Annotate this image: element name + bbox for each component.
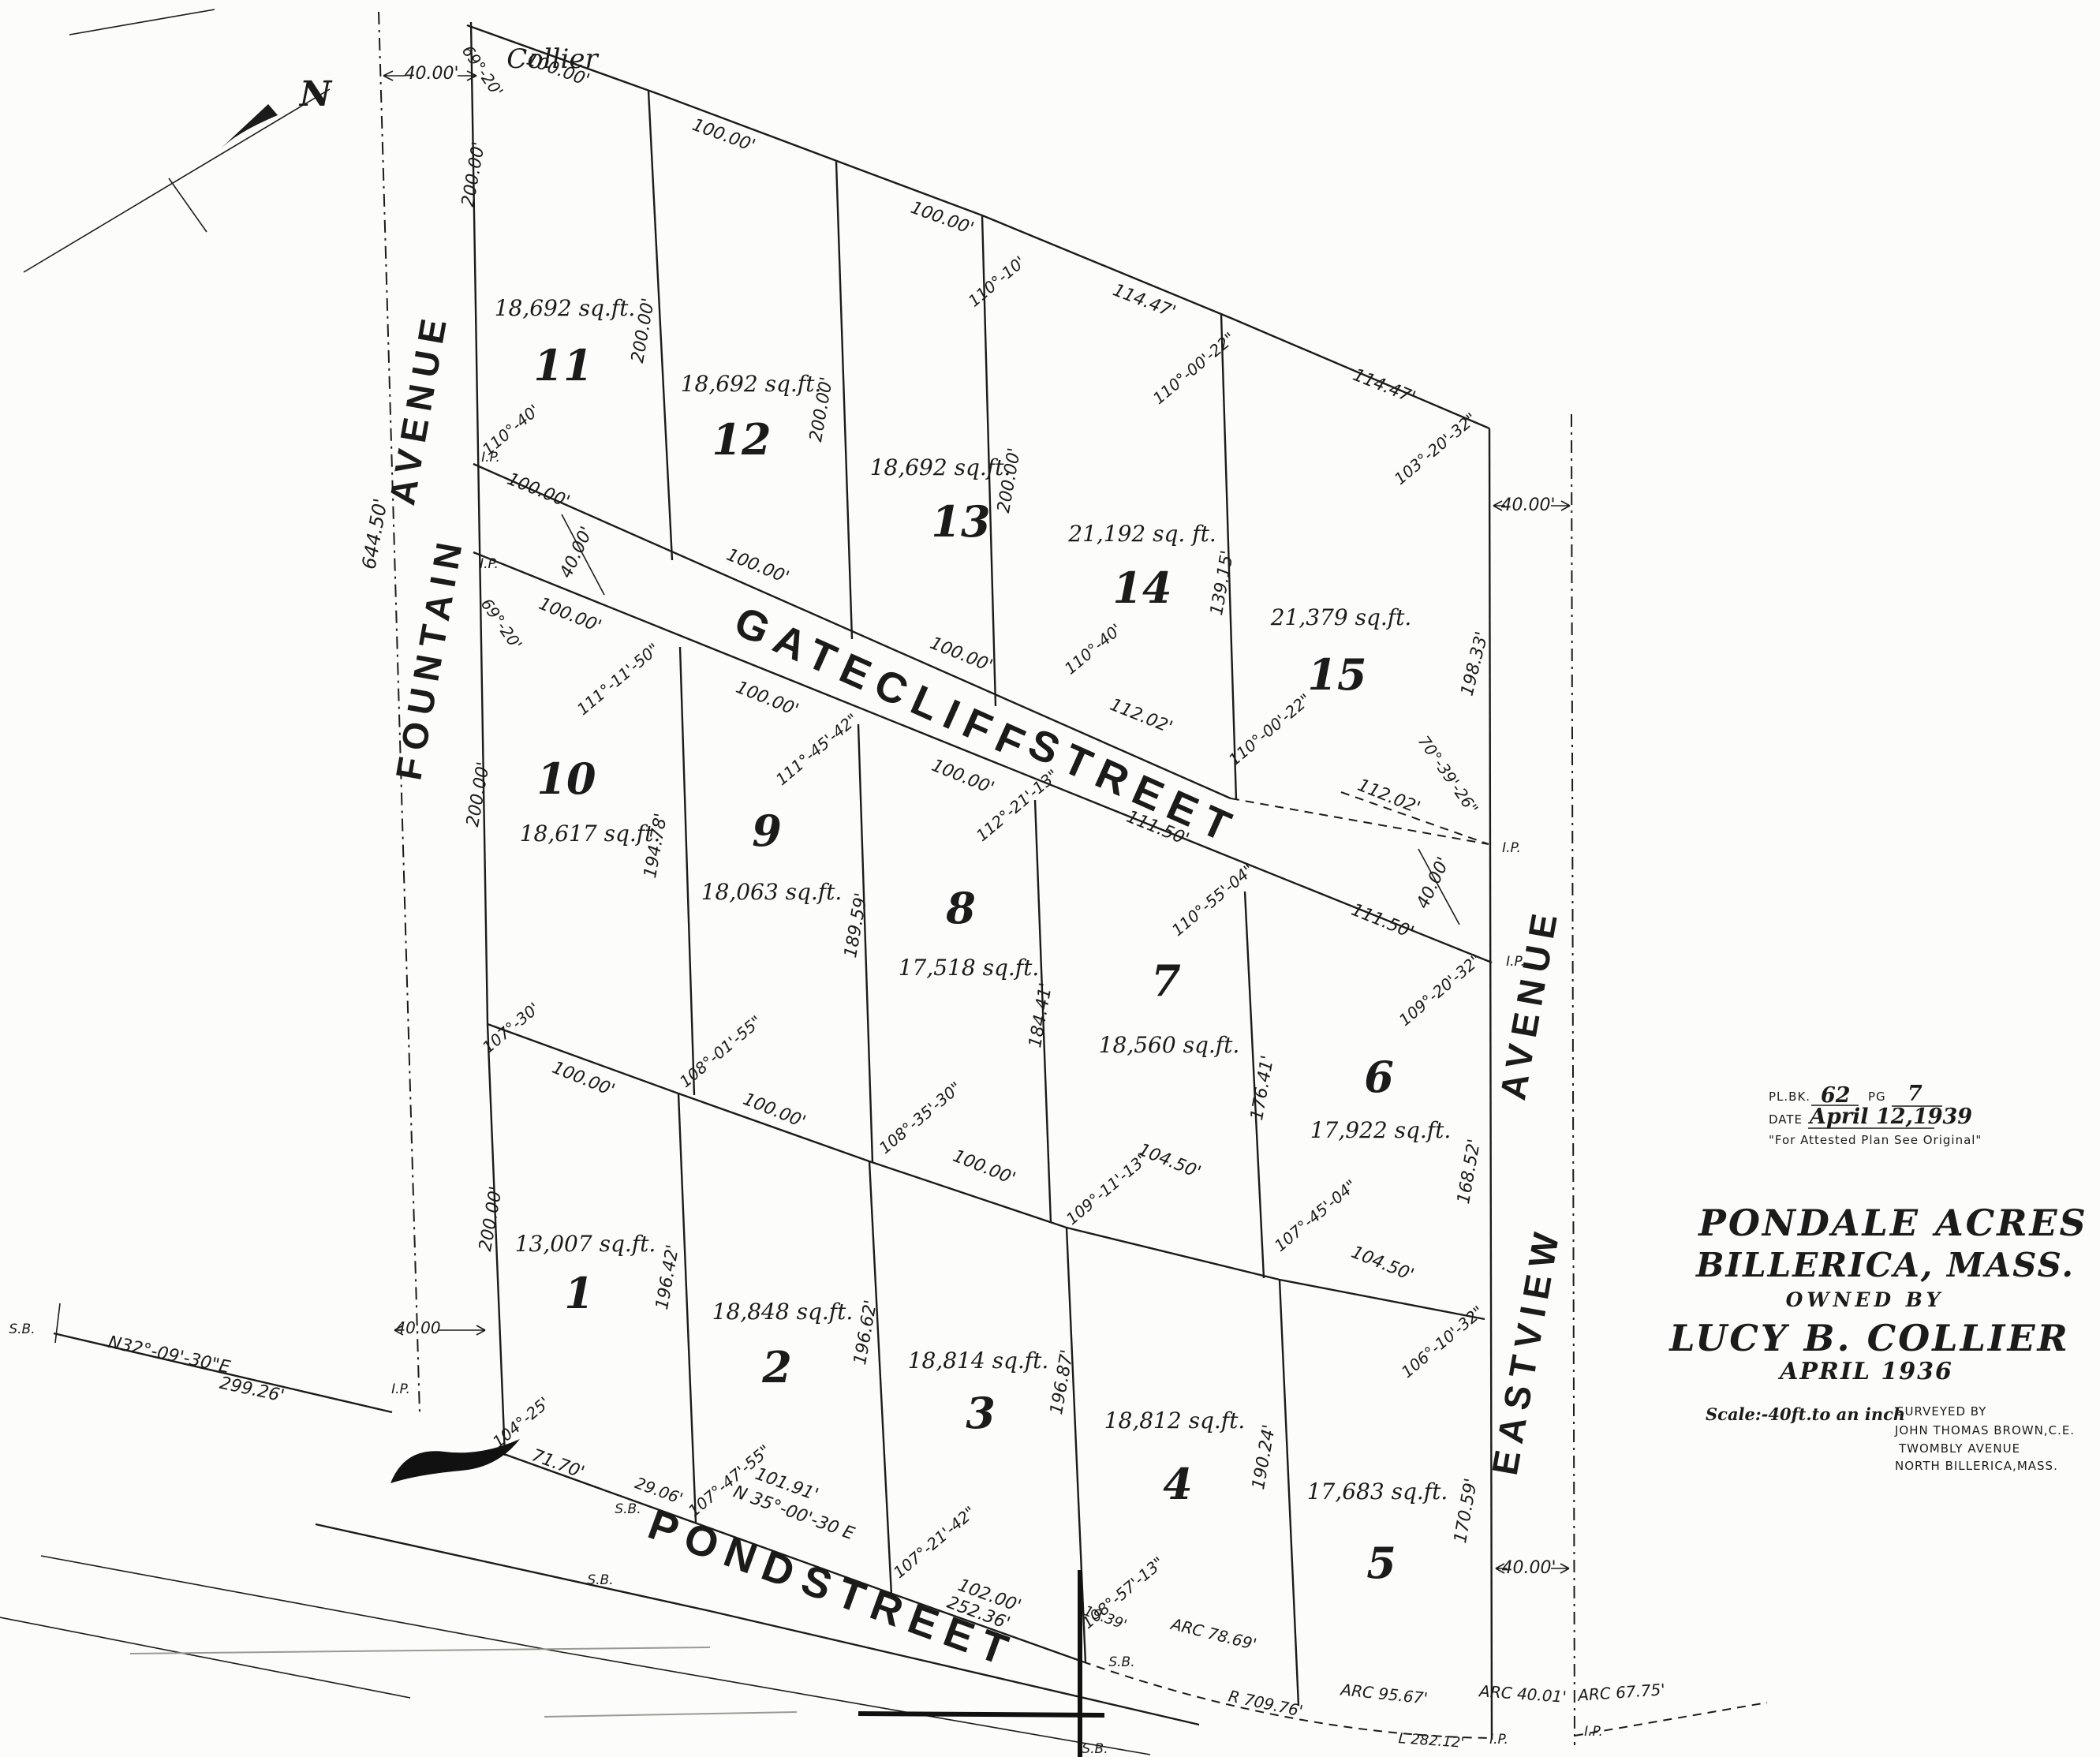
dim-arc-2: ARC 95.67'	[1338, 1680, 1429, 1708]
dim-arc-1: ARC 78.69'	[1168, 1614, 1258, 1654]
dim-row2-4: 104.50'	[1135, 1140, 1203, 1183]
dim-lot6-e: 168.52'	[1454, 1138, 1485, 1206]
plan-title: PONDALE ACRES	[1697, 1202, 2088, 1244]
lot-6-area: 17,922 sq.ft.	[1310, 1117, 1452, 1143]
lot-7-area: 18,560 sq.ft.	[1099, 1032, 1240, 1058]
lot-1-area: 13,007 sq.ft.	[515, 1231, 656, 1257]
angle-lot15-ne: 103°-20'-32"	[1391, 409, 1481, 488]
dim-lot14-s: 112.02'	[1107, 695, 1175, 738]
north-arrow-label: N	[298, 74, 333, 114]
iron-pipe-marker-0: I.P.	[481, 450, 500, 465]
dim-lot1-e: 196.42'	[652, 1243, 683, 1311]
dim-lot14-e: 139.15'	[1207, 549, 1238, 617]
angle-lot3-sw: 107°-21'-42"	[890, 1502, 980, 1582]
dim-gatecliff-s5: 111.50'	[1348, 900, 1416, 943]
lot-8-area: 17,518 sq.ft.	[899, 955, 1040, 981]
angle-lot7-sw: 109°-11'-13"	[1063, 1149, 1153, 1228]
dim-lot11-w: 200.00'	[458, 140, 489, 208]
dim-lot4-e: 190.24'	[1249, 1423, 1280, 1491]
dim-lot15-e: 198.33'	[1458, 630, 1493, 698]
lot-5-area: 17,683 sq.ft.	[1307, 1478, 1448, 1505]
lot-11-number: 11	[533, 340, 592, 391]
date-value: April 12,1939	[1807, 1105, 1972, 1129]
dim-gatecliff-s3: 100.00'	[929, 756, 996, 798]
lot-line-12-13	[836, 162, 852, 639]
lot-13-area: 18,692 sq.ft.	[870, 454, 1011, 480]
iron-pipe-marker-3: I.P.	[1502, 840, 1521, 856]
plan-date: APRIL 1936	[1777, 1358, 1953, 1385]
dim-pond-1: 71.70'	[529, 1445, 587, 1482]
dim-arc-5: ARC 67.75'	[1575, 1680, 1665, 1705]
lot-2-number: 2	[761, 1342, 792, 1393]
iron-pipe-marker-5: I.P.	[1489, 1732, 1508, 1748]
stone-bound-marker-2: S.B.	[587, 1572, 613, 1588]
dim-lot9-e: 189.59'	[841, 892, 872, 959]
angle-lot6-sw: 107°-45'-04"	[1271, 1176, 1361, 1255]
dim-top-4: 114.47'	[1110, 280, 1178, 322]
north-arrow-line	[24, 89, 330, 272]
street-names: Collier GATECLIFF STREET POND STREET FOU…	[298, 43, 1568, 1677]
dim-sw: 299.26'	[218, 1374, 286, 1407]
lot-1-number: 1	[564, 1268, 594, 1318]
scuff-mark-1	[544, 1712, 797, 1717]
stone-bound-marker-4: S.B.	[1082, 1741, 1108, 1757]
lot-15-number: 15	[1307, 649, 1366, 700]
dim-gatecliff-width-w: 40.00'	[556, 524, 597, 581]
dim-eastview-bottom-width: 40.00'	[1501, 1558, 1556, 1578]
eastview-ave-east-line	[1571, 414, 1575, 1745]
gatecliff-north-line-ext	[1231, 798, 1489, 844]
lot-9-number: 9	[752, 806, 782, 856]
angle-lot6-ne: 109°-20'-32"	[1396, 950, 1485, 1030]
pond-arc-east-ext	[1575, 1703, 1767, 1736]
dim-top-2: 100.00'	[689, 115, 758, 156]
dim-lot1-w: 200.00'	[476, 1185, 506, 1253]
lot-10-area: 18,617 sq.ft.	[520, 821, 661, 847]
north-arrow-cross-tick	[169, 178, 207, 232]
dim-fountain-top-width: 40.00'	[404, 64, 458, 84]
lot-2-area: 18,848 sq.ft.	[712, 1299, 854, 1325]
plat-map-page: Collier GATECLIFF STREET POND STREET FOU…	[0, 0, 2100, 1757]
dim-gatecliff-n2: 100.00'	[723, 545, 791, 588]
stone-bound-marker-0: S.B.	[9, 1321, 35, 1337]
lot-8-number: 8	[945, 883, 976, 933]
owned-by-label: OWNED BY	[1786, 1288, 1945, 1311]
iron-pipe-marker-6: I.P.	[1584, 1724, 1603, 1740]
collier-boundary-line	[467, 25, 1489, 428]
lower-stray-line	[0, 1617, 410, 1698]
lot-line-4-5	[1280, 1280, 1298, 1706]
dim-lot8-e: 184.41'	[1026, 981, 1056, 1049]
lot-4-number: 4	[1163, 1459, 1193, 1509]
scan-stray-line	[69, 9, 215, 35]
record-block: PL.BK. 62 PG 7 DATE April 12,1939 "For A…	[1769, 1082, 1982, 1147]
dim-row2-5: 104.50'	[1348, 1243, 1416, 1285]
dim-eastview-top-width: 40.00'	[1500, 495, 1555, 515]
angle-lot8-sw: 108°-35'-30"	[876, 1078, 966, 1157]
attested-note: "For Attested Plan See Original"	[1769, 1133, 1982, 1147]
dim-lot7-e: 176.41'	[1247, 1054, 1278, 1122]
lot-12-number: 12	[712, 414, 771, 465]
street-fountain-word2: AVENUE	[381, 308, 455, 508]
angle-lot15-sw: 110°-00'-22"	[1225, 690, 1315, 769]
lot-13-number: 13	[931, 496, 990, 547]
owner-name: LUCY B. COLLIER	[1668, 1317, 2070, 1359]
dim-row2-2: 100.00'	[740, 1090, 808, 1132]
dim-lot5-e: 170.59'	[1451, 1477, 1482, 1545]
lot-14-area: 21,192 sq. ft.	[1067, 521, 1216, 547]
fold-smudge	[858, 1714, 1104, 1715]
surveyor-town: NORTH BILLERICA,MASS.	[1895, 1459, 2058, 1473]
date-label: DATE	[1769, 1112, 1803, 1127]
iron-pipe-marker-4: I.P.	[1506, 954, 1525, 970]
bearing-sw: N32°-09'-30"E	[106, 1333, 232, 1378]
dim-gatecliff-n1: 100.00'	[504, 469, 572, 512]
lot-line-1-2	[678, 1093, 696, 1523]
lot-15-area: 21,379 sq.ft.	[1270, 604, 1412, 630]
angle-lot13-nw: 110°-10'	[965, 252, 1029, 311]
surveyor-street: TWOMBLY AVENUE	[1898, 1441, 2020, 1456]
iron-pipe-marker-1: I.P.	[480, 556, 499, 572]
scuff-mark-2	[130, 1647, 710, 1654]
lot-4-area: 18,812 sq.ft.	[1104, 1407, 1246, 1434]
angle-lot15-se: 70°-39'-26"	[1414, 732, 1482, 817]
lot-9-area: 18,063 sq.ft.	[701, 879, 843, 905]
surveyor-name: JOHN THOMAS BROWN,C.E.	[1894, 1423, 2075, 1437]
lot-line-3-4	[1067, 1228, 1085, 1663]
lot-line-2-3	[869, 1161, 891, 1595]
lot-3-area: 18,814 sq.ft.	[908, 1348, 1049, 1374]
angle-lot11-nw: 69°-20'	[458, 42, 507, 100]
dim-arc-3: L 282.12'	[1398, 1730, 1465, 1751]
angle-lot10-ne: 111°-11'-50"	[574, 639, 663, 719]
iron-pipe-marker-2: I.P.	[391, 1381, 410, 1397]
street-eastview-word2: AVENUE	[1492, 903, 1566, 1103]
lot-6-number: 6	[1364, 1052, 1394, 1102]
angle-lot7-ne: 110°-55'-04"	[1168, 860, 1258, 940]
dim-row2-3: 100.00'	[950, 1146, 1018, 1189]
lot-5-number: 5	[1366, 1538, 1396, 1588]
angle-lot5-ne: 106°-10'-32"	[1398, 1302, 1488, 1381]
dim-fountain-bottom-width: 40.00	[395, 1318, 440, 1337]
dim-lot10-w: 200.00'	[463, 761, 494, 828]
eastview-ave-west-line	[1489, 428, 1492, 1740]
angle-lot9-ne: 111°-45'-42"	[772, 709, 862, 789]
scale-note: Scale:-40ft.to an inch	[1706, 1404, 1905, 1424]
pg-value: 7	[1908, 1082, 1923, 1106]
north-arrow-head	[221, 104, 278, 148]
dim-arc-4: ARC 40.01'	[1477, 1681, 1567, 1707]
angle-lot14-sw: 110°-40'	[1061, 620, 1126, 679]
lot-line-10-9	[680, 647, 694, 1095]
dim-lot2-e: 196.62'	[850, 1299, 881, 1366]
surveyed-by-label: SURVEYED BY	[1896, 1404, 1986, 1419]
sw-stone-bound-tick	[55, 1303, 60, 1343]
survey-lines	[0, 9, 1767, 1757]
pl-bk-label: PL.BK.	[1769, 1090, 1810, 1104]
dim-top-3: 100.00'	[908, 198, 977, 239]
lot-3-number: 3	[966, 1388, 996, 1438]
lot-labels: 113,007 sq.ft.218,848 sq.ft.318,814 sq.f…	[495, 295, 1452, 1588]
angle-lot1-sw: 104°-25'	[489, 1393, 554, 1452]
dim-lot15-s: 112.02'	[1355, 776, 1422, 818]
dim-fountain-length: 644.50'	[357, 497, 391, 571]
plan-location: BILLERICA, MASS.	[1695, 1246, 2075, 1284]
lot-10-number: 10	[536, 753, 596, 804]
dim-gatecliff-s2: 100.00'	[733, 678, 801, 720]
angle-lot9-sw: 108°-01'-55"	[676, 1011, 766, 1091]
street-fountain-word1: FOUNTAIN	[387, 532, 471, 783]
dim-radius: R 709.76'	[1227, 1686, 1305, 1720]
stone-bound-marker-1: S.B.	[615, 1501, 641, 1517]
plat-map-drawing: Collier GATECLIFF STREET POND STREET FOU…	[0, 0, 2100, 1757]
title-block: PONDALE ACRES BILLERICA, MASS. OWNED BY …	[1668, 1202, 2088, 1473]
lot-14-number: 14	[1112, 563, 1171, 613]
angle-lot10-nw: 69°-20'	[477, 595, 526, 653]
north-arrow	[24, 89, 330, 272]
dim-row2-1: 100.00'	[549, 1058, 617, 1101]
lot-7-number: 7	[1151, 955, 1181, 1006]
lot-12-area: 18,692 sq.ft.	[681, 371, 822, 397]
lot-11-area: 18,692 sq.ft.	[495, 295, 636, 321]
street-eastview-word1: EASTVIEW	[1484, 1222, 1568, 1478]
angle-lot14-ne: 110°-00'-22"	[1149, 328, 1239, 408]
pg-label: PG	[1868, 1090, 1886, 1104]
dim-top-5: 114.47'	[1350, 365, 1418, 408]
stone-bound-marker-3: S.B.	[1108, 1654, 1134, 1670]
